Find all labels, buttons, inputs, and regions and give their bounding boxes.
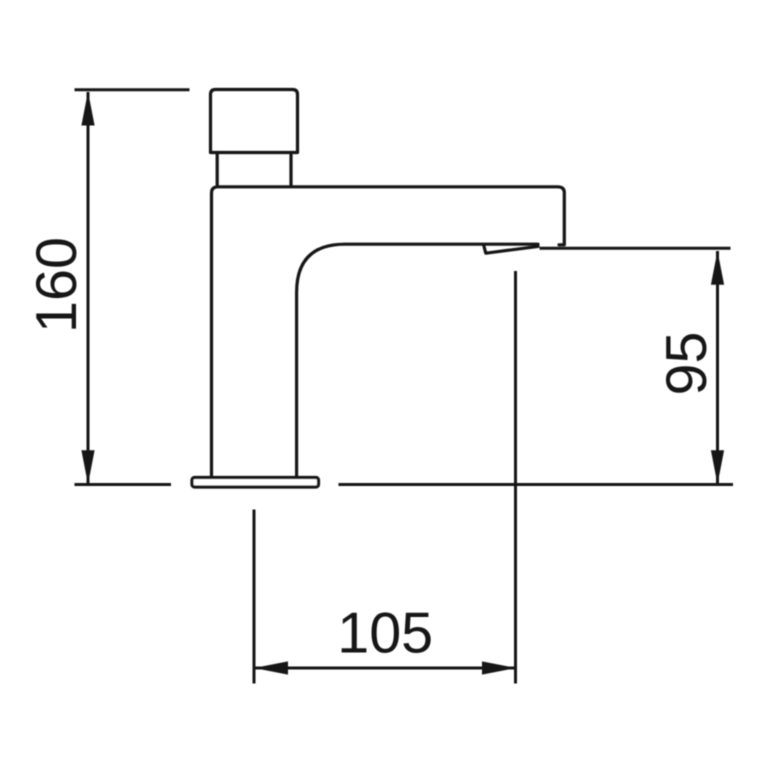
svg-text:105: 105 <box>337 602 433 666</box>
svg-text:95: 95 <box>655 332 719 396</box>
svg-text:160: 160 <box>25 237 89 333</box>
